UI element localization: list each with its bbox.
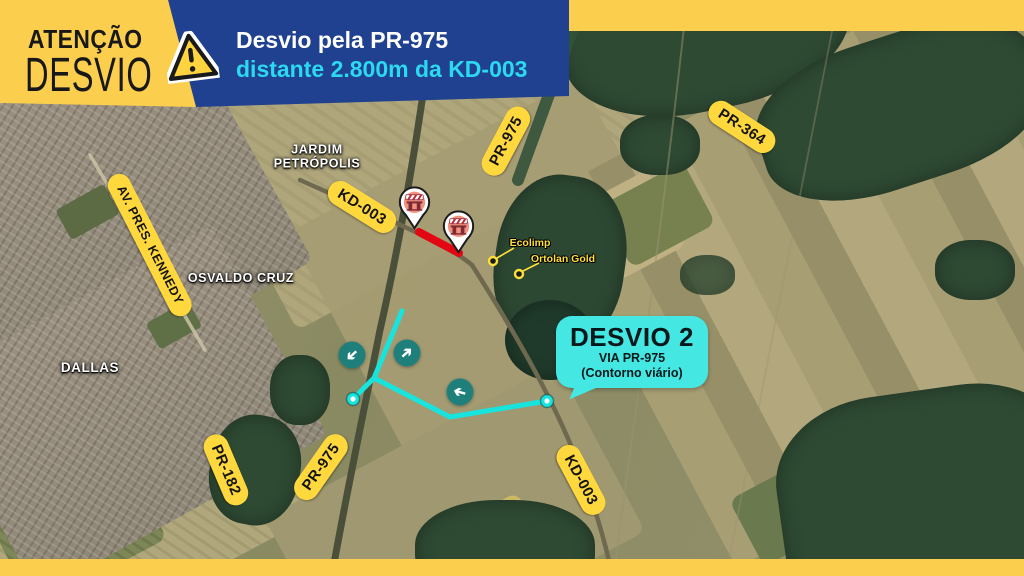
bridge-closed-pin [442,210,475,254]
poi-label-ecolimp: Ecolimp [510,237,551,249]
warning-triangle-icon [162,28,220,84]
bridge-closed-pin [398,186,431,230]
place-label-line: JARDIM [274,143,361,157]
poi-dot-ecolimp [489,257,497,265]
bridge-icon [442,210,475,254]
direction-arrow-down-left: ➔ [339,342,366,369]
banner-line-1: Desvio pela PR-975 [236,27,448,54]
banner-line-2: distante 2.800m da KD-003 [236,56,527,83]
arrow-icon: ➔ [397,343,416,363]
detour-callout: DESVIO 2 VIA PR-975 (Contorno viário) [556,316,708,388]
direction-arrow-up-left: ➔ [447,379,474,406]
poi-dot-ortolan-gold [515,270,523,278]
place-label-osvaldo-cruz: OSVALDO CRUZ [188,271,294,285]
route-endpoint-dot [541,395,554,408]
bridge-icon [398,186,431,230]
arrow-icon: ➔ [342,345,361,365]
poi-label-ortolan-gold: Ortolan Gold [531,253,595,265]
detour-notice-graphic: ➔ ➔ ➔ KD-003 PR-975 PR-364 AV. PRES. KEN… [0,0,1024,576]
direction-arrow-up-right: ➔ [394,340,421,367]
arrow-icon: ➔ [452,383,468,401]
bottom-accent-bar [0,559,1024,576]
attention-subtitle: DESVIO [25,52,152,100]
route-endpoint-dot [347,393,360,406]
callout-subtitle-2: (Contorno viário) [581,366,682,380]
place-label-line: PETRÓPOLIS [274,157,361,171]
top-accent-bar [569,0,1024,31]
callout-title: DESVIO 2 [570,324,694,350]
poi-leader-line [497,248,514,258]
callout-subtitle-1: VIA PR-975 [599,351,665,365]
place-label-dallas: DALLAS [61,360,119,376]
place-label-jardim-petropolis: JARDIM PETRÓPOLIS [274,143,361,172]
